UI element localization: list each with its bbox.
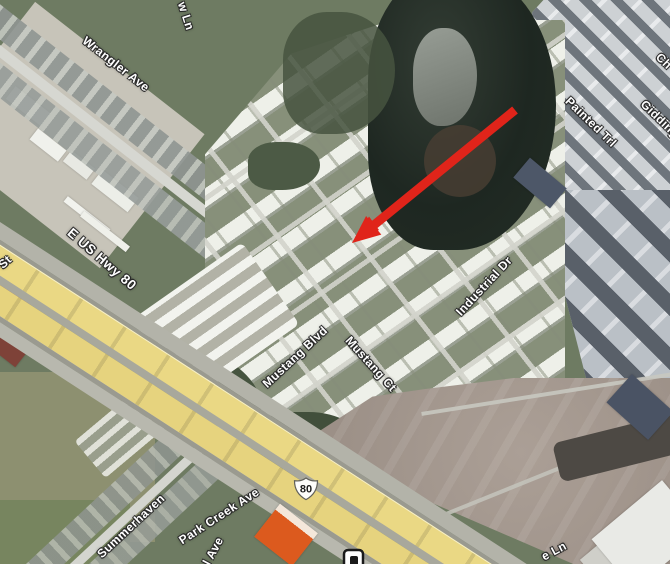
satellite-map[interactable]: 80 Wrangler Ave w Ln E US Hwy 80 St Must…: [0, 0, 670, 564]
road-label-w-ln: w Ln: [175, 0, 197, 32]
bare-soil-patch: [424, 125, 496, 197]
road-label-l-ave-partial: l Ave: [200, 535, 226, 564]
rock-outcrop: [413, 28, 477, 126]
